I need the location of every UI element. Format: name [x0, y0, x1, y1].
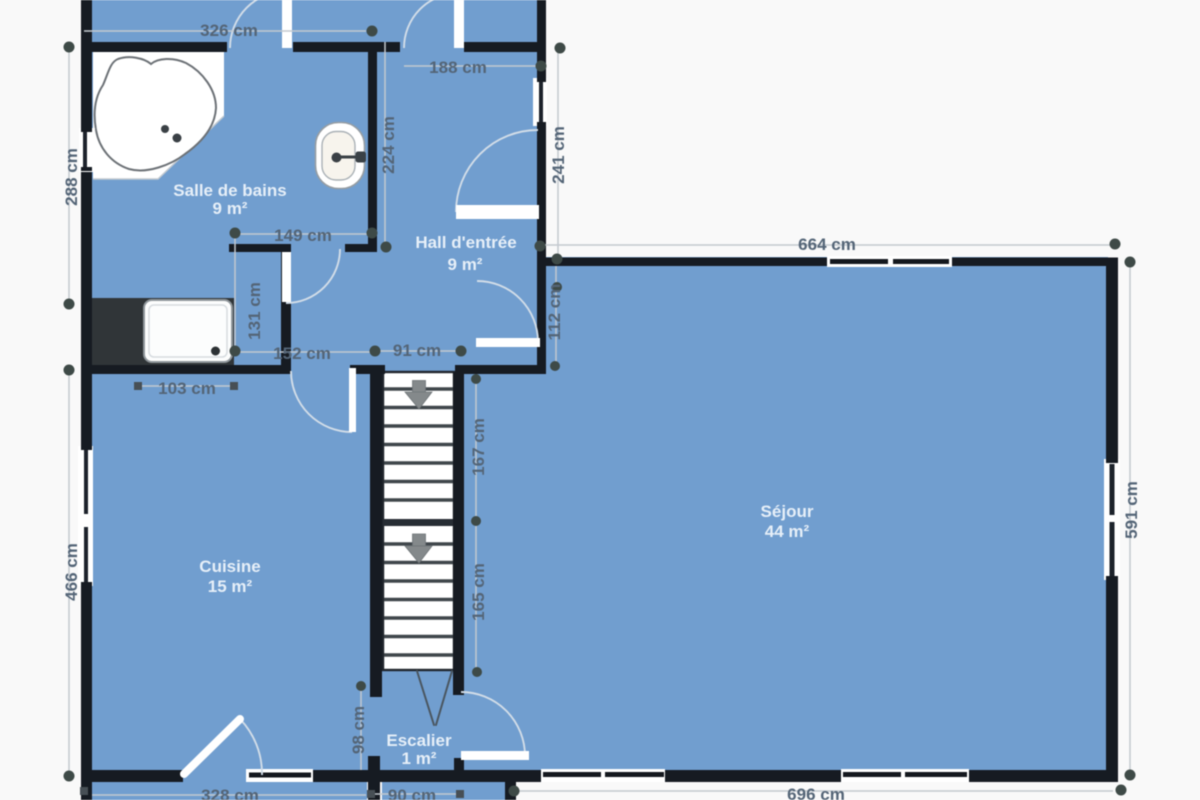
- svg-text:224 cm: 224 cm: [379, 116, 398, 174]
- svg-text:Séjour: Séjour: [761, 502, 814, 521]
- svg-text:1 m²: 1 m²: [402, 749, 437, 768]
- svg-text:9 m²: 9 m²: [213, 199, 248, 218]
- svg-text:696 cm: 696 cm: [787, 785, 845, 800]
- svg-text:328 cm: 328 cm: [201, 786, 259, 800]
- svg-text:167 cm: 167 cm: [469, 418, 488, 476]
- svg-text:9 m²: 9 m²: [448, 255, 483, 274]
- svg-text:188 cm: 188 cm: [429, 58, 487, 77]
- svg-text:152 cm: 152 cm: [273, 344, 331, 363]
- svg-text:15 m²: 15 m²: [208, 577, 253, 596]
- svg-text:664 cm: 664 cm: [798, 235, 856, 254]
- svg-text:131 cm: 131 cm: [245, 282, 264, 340]
- svg-text:90 cm: 90 cm: [388, 786, 436, 800]
- svg-text:241 cm: 241 cm: [549, 126, 568, 184]
- svg-text:288 cm: 288 cm: [62, 148, 81, 206]
- svg-text:91 cm: 91 cm: [393, 341, 441, 360]
- svg-text:466 cm: 466 cm: [62, 543, 81, 601]
- svg-text:326 cm: 326 cm: [200, 21, 258, 40]
- svg-text:103 cm: 103 cm: [158, 379, 216, 398]
- svg-text:591 cm: 591 cm: [1122, 481, 1141, 539]
- svg-text:112 cm: 112 cm: [545, 284, 564, 341]
- svg-text:149 cm: 149 cm: [274, 226, 332, 245]
- svg-text:Cuisine: Cuisine: [199, 557, 260, 576]
- svg-text:165 cm: 165 cm: [469, 563, 488, 621]
- svg-text:Escalier: Escalier: [386, 731, 452, 750]
- svg-text:Salle de bains: Salle de bains: [173, 181, 286, 200]
- svg-text:44 m²: 44 m²: [765, 522, 810, 541]
- svg-text:Hall d'entrée: Hall d'entrée: [415, 233, 516, 252]
- svg-text:98 cm: 98 cm: [349, 706, 368, 754]
